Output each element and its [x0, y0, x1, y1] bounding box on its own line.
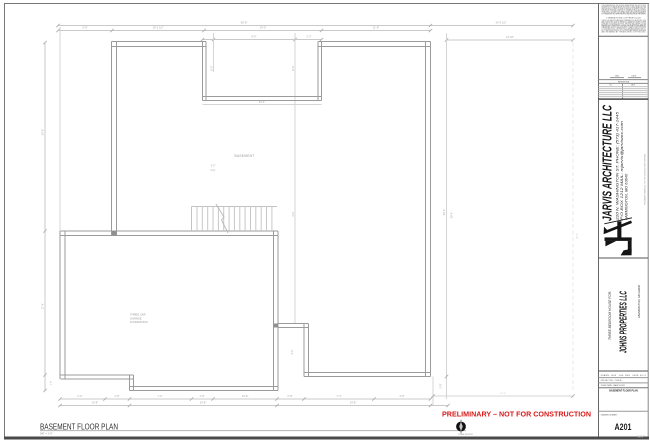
svg-text:FARMINGTON, MO 63640: FARMINGTON, MO 63640 [624, 173, 629, 220]
svg-text:DRAWN: MJW CHK: DWG DATE:: DRAWN: MJW CHK: DWG DATE: 03-21 [601, 374, 646, 377]
svg-text:13'-10": 13'-10" [506, 35, 514, 39]
svg-text:2'-8": 2'-8" [287, 394, 292, 398]
svg-text:14'-8": 14'-8" [350, 401, 357, 405]
svg-text:JOHNS PROPERTIES LLC: JOHNS PROPERTIES LLC [619, 291, 630, 353]
svg-text:4'-8": 4'-8" [399, 394, 404, 398]
svg-text:PLAN NORTH: PLAN NORTH [458, 433, 472, 436]
svg-text:DRAWING NUMBER:: DRAWING NUMBER: [601, 414, 618, 417]
svg-text:3/8" = 1'-0": 3/8" = 1'-0" [40, 431, 53, 435]
svg-text:24'-8": 24'-8" [200, 401, 207, 405]
svg-text:WAP: WAP [637, 435, 645, 439]
svg-text:10'-8": 10'-8" [92, 401, 99, 405]
svg-text:3'-0": 3'-0" [291, 211, 295, 216]
svg-text:7'-4": 7'-4" [336, 394, 341, 398]
svg-text:A201: A201 [615, 422, 633, 433]
svg-text:1. GENERAL NOTES & COPYRIGHT (: 1. GENERAL NOTES & COPYRIGHT (C) 2021 [606, 17, 641, 20]
svg-text:FOUNDATION: FOUNDATION [130, 320, 148, 324]
svg-text:55'-8": 55'-8" [241, 21, 248, 25]
svg-text:PRELIMINARY – NOT FOR CONSTRUC: PRELIMINARY – NOT FOR CONSTRUCTION [442, 411, 591, 418]
svg-text:8'-0": 8'-0" [291, 65, 295, 70]
svg-text:4'-8": 4'-8" [114, 394, 119, 398]
svg-text:CLG.: CLG. [210, 170, 216, 172]
svg-text:16'-2 1/2": 16'-2 1/2" [153, 26, 164, 30]
svg-text:41'-4": 41'-4" [577, 233, 579, 239]
svg-text:ISSUE DATE: MARCH 2021: ISSUE DATE: MARCH 2021 [601, 384, 625, 387]
svg-text:1'-8": 1'-8" [51, 381, 53, 386]
svg-text:BASEMENT FLOOR PLAN: BASEMENT FLOOR PLAN [40, 422, 118, 431]
svg-text:JARVIS ARCHITECTURE LLC: JARVIS ARCHITECTURE LLC [601, 104, 615, 221]
svg-text:14'-3 1/2": 14'-3 1/2" [496, 21, 507, 25]
svg-text:10'-0": 10'-0" [260, 26, 267, 30]
svg-text:17'-4": 17'-4" [41, 303, 45, 310]
svg-text:9'-0": 9'-0" [211, 166, 216, 168]
svg-text:PROJECT NO: 21-0138: PROJECT NO: 21-0138 [601, 380, 622, 382]
svg-text:7'-0": 7'-0" [157, 394, 162, 398]
svg-text:10'-8": 10'-8" [242, 394, 249, 398]
svg-text:8'-0": 8'-0" [209, 65, 213, 70]
svg-text:5'-8": 5'-8" [82, 26, 87, 30]
svg-text:GARAGE: GARAGE [130, 316, 142, 320]
svg-text:2'-2": 2'-2" [306, 35, 311, 39]
svg-text:11'-8": 11'-8" [373, 26, 379, 30]
svg-text:20'-8": 20'-8" [41, 129, 45, 136]
svg-text:BASEMENT: BASEMENT [235, 154, 255, 158]
svg-text:THREE BEDROOM HOUSE FOR:: THREE BEDROOM HOUSE FOR: [608, 291, 612, 340]
svg-text:1'-8": 1'-8" [199, 394, 204, 398]
svg-text:BASEMENT FLOOR PLAN: BASEMENT FLOOR PLAN [609, 388, 638, 392]
svg-text:12'-4": 12'-4" [500, 393, 506, 395]
svg-text:2'-8": 2'-8" [439, 383, 443, 388]
svg-text:2'-0": 2'-0" [77, 394, 82, 398]
svg-text:4'-0": 4'-0" [290, 349, 294, 354]
svg-text:40'-0": 40'-0" [442, 209, 446, 216]
svg-text:FARMINGTON, MO 63640: FARMINGTON, MO 63640 [637, 284, 641, 318]
svg-text:THREE CAR: THREE CAR [130, 313, 146, 317]
svg-text:8'-6": 8'-6" [251, 35, 256, 39]
svg-text:39'-4": 39'-4" [450, 212, 454, 219]
